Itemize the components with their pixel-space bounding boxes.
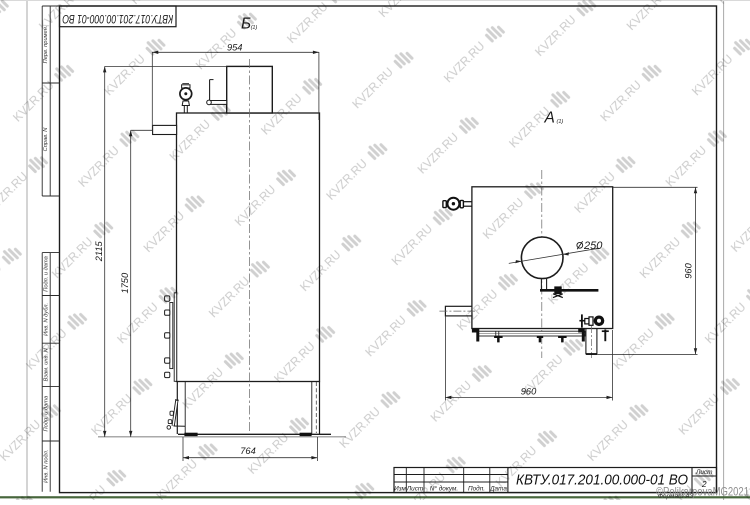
svg-text:Формат А3: Формат А3 (658, 493, 694, 500)
